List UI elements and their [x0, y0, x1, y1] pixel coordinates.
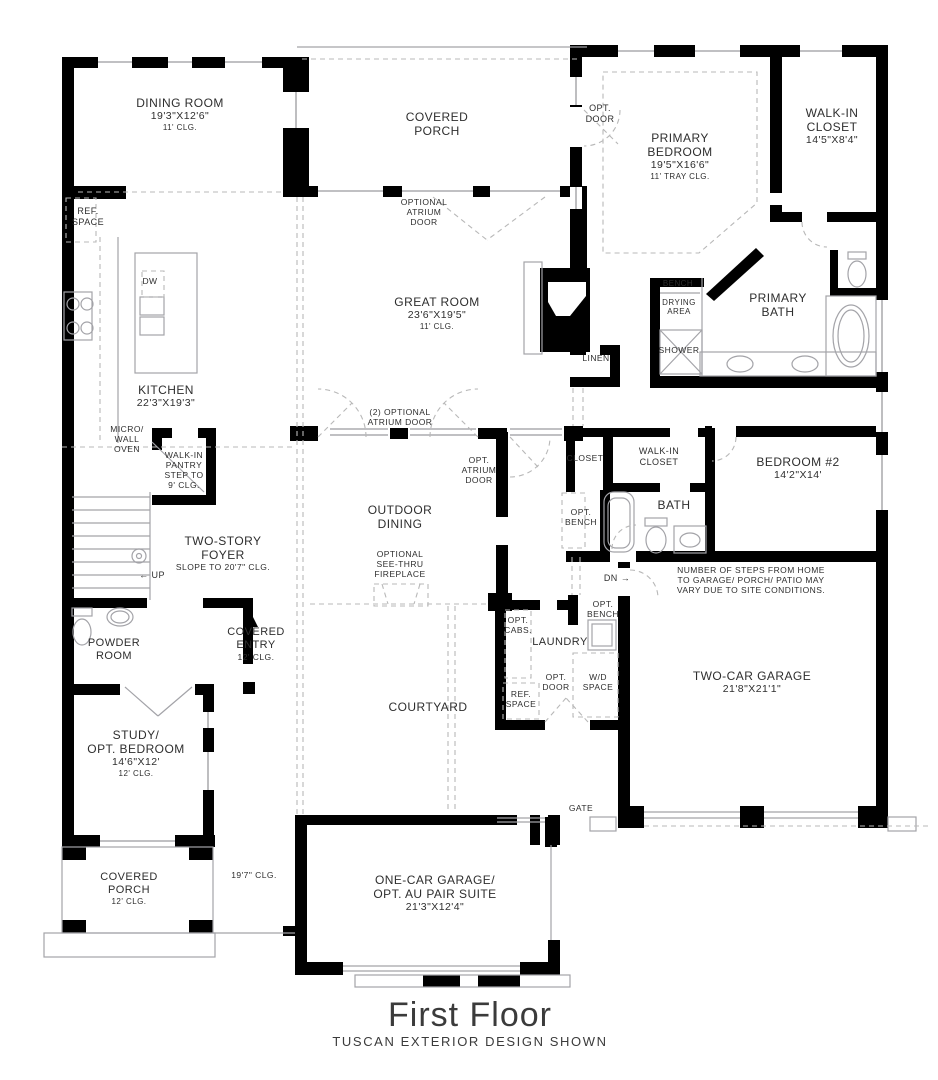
page-title: First Floor: [388, 996, 552, 1035]
floor-plan-drawing: [0, 0, 938, 1080]
page-subtitle: TUSCAN EXTERIOR DESIGN SHOWN: [332, 1034, 607, 1049]
floor-plan-page: DINING ROOM19'3"X12'6"11' CLG.REF.SPACEC…: [0, 0, 938, 1080]
walls-layer: [62, 45, 888, 987]
windows-layer: [98, 45, 888, 847]
